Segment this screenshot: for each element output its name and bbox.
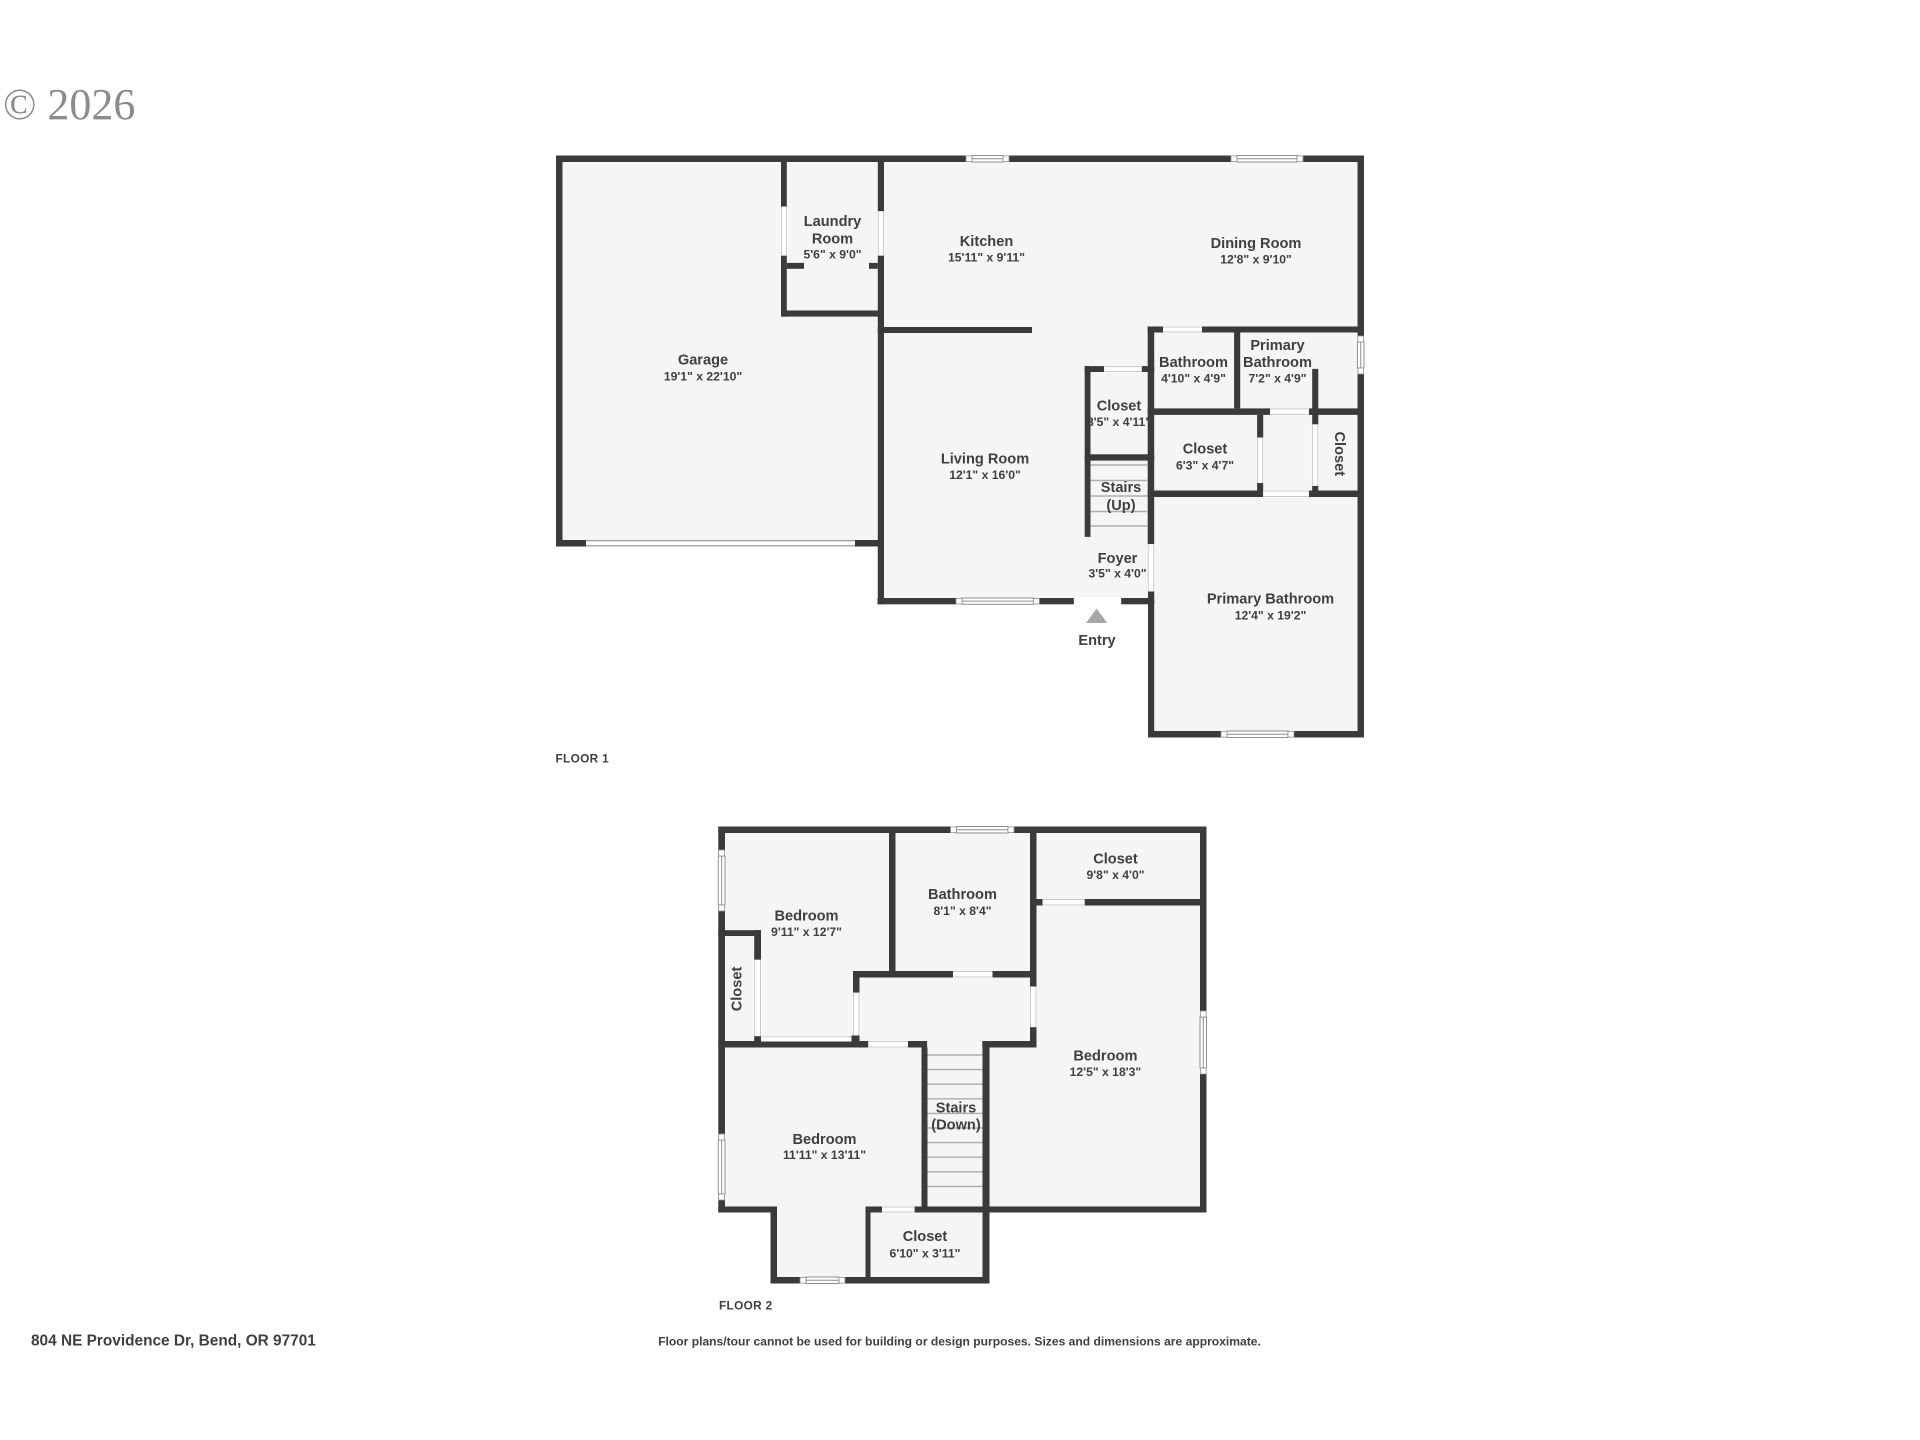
- svg-text:5'6" x 9'0": 5'6" x 9'0": [803, 248, 861, 262]
- svg-text:Bathroom: Bathroom: [928, 887, 997, 903]
- svg-text:Bathroom: Bathroom: [1243, 355, 1312, 371]
- svg-text:Garage: Garage: [678, 353, 728, 369]
- svg-text:19'1" x 22'10": 19'1" x 22'10": [664, 370, 742, 384]
- svg-text:Closet: Closet: [903, 1229, 948, 1245]
- svg-text:Closet: Closet: [730, 967, 746, 1012]
- svg-text:15'11" x 9'11": 15'11" x 9'11": [948, 251, 1025, 265]
- svg-text:Bedroom: Bedroom: [792, 1132, 856, 1148]
- svg-text:FLOOR 1: FLOOR 1: [556, 752, 610, 766]
- svg-text:Closet: Closet: [1093, 852, 1138, 868]
- svg-text:6'3" x 4'7": 6'3" x 4'7": [1176, 459, 1234, 473]
- svg-text:Stairs: Stairs: [1101, 480, 1142, 496]
- svg-text:3'5" x 4'11": 3'5" x 4'11": [1087, 415, 1151, 429]
- svg-text:Closet: Closet: [1331, 431, 1347, 476]
- svg-text:Entry: Entry: [1078, 633, 1116, 649]
- svg-text:Foyer: Foyer: [1098, 551, 1138, 567]
- svg-text:FLOOR 2: FLOOR 2: [719, 1299, 773, 1313]
- svg-text:12'5" x 18'3": 12'5" x 18'3": [1070, 1065, 1142, 1079]
- svg-text:Laundry: Laundry: [804, 214, 862, 230]
- svg-text:804 NE Providence Dr, Bend, OR: 804 NE Providence Dr, Bend, OR 97701: [31, 1333, 316, 1350]
- svg-text:7'2" x 4'9": 7'2" x 4'9": [1248, 372, 1306, 386]
- svg-text:9'11" x 12'7": 9'11" x 12'7": [771, 925, 842, 939]
- svg-text:12'1" x 16'0": 12'1" x 16'0": [949, 468, 1021, 482]
- svg-text:(Up): (Up): [1106, 498, 1135, 514]
- svg-text:Bedroom: Bedroom: [774, 909, 838, 925]
- svg-text:Room: Room: [812, 232, 853, 248]
- svg-text:Closet: Closet: [1183, 442, 1228, 458]
- svg-text:Bedroom: Bedroom: [1073, 1049, 1137, 1065]
- svg-text:Dining Room: Dining Room: [1211, 236, 1302, 252]
- svg-text:12'4" x 19'2": 12'4" x 19'2": [1235, 609, 1307, 623]
- svg-text:© 2026: © 2026: [3, 80, 135, 129]
- svg-text:Bathroom: Bathroom: [1159, 355, 1228, 371]
- svg-text:8'1" x 8'4": 8'1" x 8'4": [933, 904, 991, 918]
- svg-text:Primary Bathroom: Primary Bathroom: [1207, 592, 1334, 608]
- svg-text:4'10" x 4'9": 4'10" x 4'9": [1161, 372, 1226, 386]
- svg-text:9'8" x 4'0": 9'8" x 4'0": [1086, 868, 1144, 882]
- svg-text:Primary: Primary: [1250, 338, 1305, 354]
- svg-text:3'5" x 4'0": 3'5" x 4'0": [1088, 567, 1146, 581]
- svg-text:11'11" x 13'11": 11'11" x 13'11": [783, 1148, 866, 1162]
- svg-text:(Down): (Down): [931, 1118, 981, 1134]
- svg-text:Stairs: Stairs: [936, 1101, 977, 1117]
- svg-text:6'10" x 3'11": 6'10" x 3'11": [890, 1247, 961, 1261]
- svg-text:Floor plans/tour cannot be use: Floor plans/tour cannot be used for buil…: [658, 1335, 1261, 1349]
- svg-text:Living Room: Living Room: [941, 452, 1029, 468]
- svg-text:12'8" x 9'10": 12'8" x 9'10": [1220, 253, 1292, 267]
- svg-text:Closet: Closet: [1097, 399, 1142, 415]
- svg-text:Kitchen: Kitchen: [960, 234, 1014, 250]
